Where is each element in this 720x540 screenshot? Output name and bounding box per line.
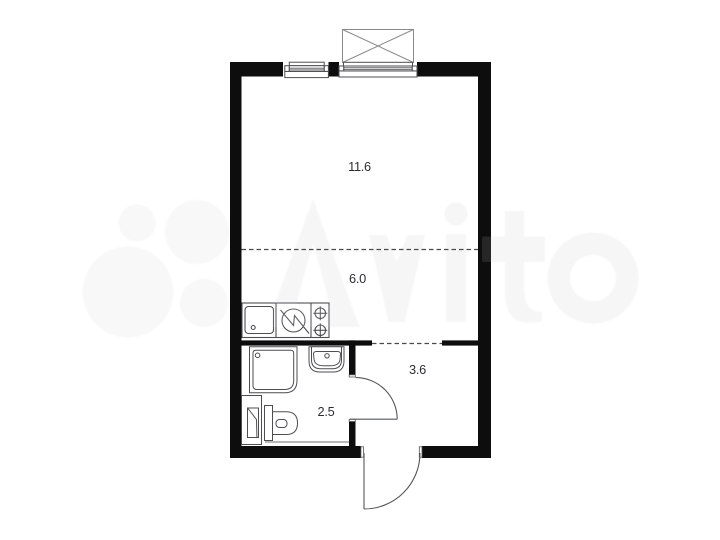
svg-text:3.6: 3.6 [409,362,426,377]
svg-text:6.0: 6.0 [349,271,366,286]
svg-text:11.6: 11.6 [348,159,371,174]
svg-text:2.5: 2.5 [318,404,335,419]
